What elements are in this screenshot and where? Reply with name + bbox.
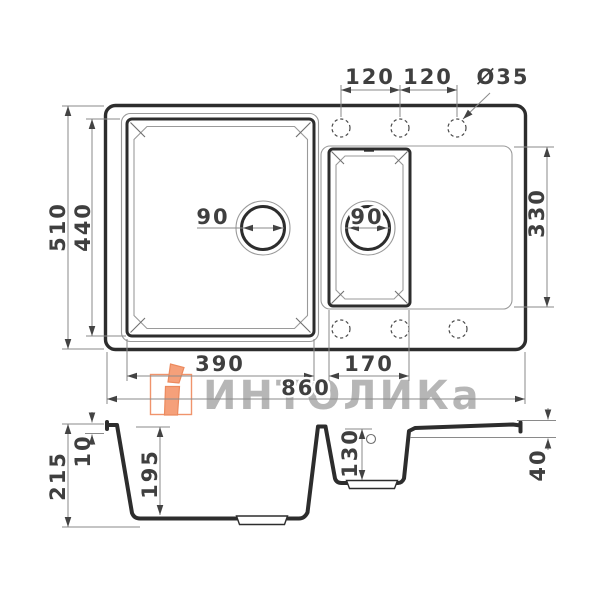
faucet-hole-icon — [332, 320, 350, 338]
main-bowl-chamfer-tl — [131, 123, 146, 138]
faucet-hole-icon — [391, 320, 409, 338]
small-bowl-chamfer-tr — [395, 152, 408, 165]
dim-total-width: 860 — [281, 376, 331, 400]
dim-main-bowl-height: 440 — [71, 202, 95, 252]
faucet-hole-icon — [448, 119, 466, 137]
faucet-hole-icon — [391, 119, 409, 137]
dim-faucet-spacing-left: 120 — [345, 65, 395, 89]
dim-faucet-hole-diameter: Ø35 — [476, 65, 529, 89]
faucet-hole-icon — [332, 119, 350, 137]
main-bowl-chamfer-bl — [131, 318, 146, 333]
dim-right-edge-height: 40 — [526, 448, 550, 481]
main-drain-recess — [237, 516, 288, 525]
dim-right-zone-height: 330 — [525, 188, 549, 238]
dim-total-depth: 215 — [46, 451, 70, 501]
dim-main-bowl-depth: 195 — [138, 449, 162, 499]
small-bowl-chamfer-bl — [332, 291, 345, 304]
dim-small-drain: 90 — [350, 205, 383, 229]
dim-rim-height: 10 — [71, 434, 95, 467]
section-drain-hole-icon — [367, 435, 376, 444]
side-view: 215 10 195 130 40 — [46, 408, 556, 527]
small-bowl-chamfer-tl — [332, 152, 345, 165]
dim-total-height: 510 — [46, 202, 70, 252]
top-view: 90 90 120 120 Ø35 510 440 330 390 — [46, 65, 554, 404]
faucet-hole-icon — [449, 320, 467, 338]
watermark-brand-text: ИНТОЛИКа — [203, 373, 482, 419]
dim-main-bowl-width: 390 — [195, 352, 245, 376]
brand-logo-bar-icon — [165, 387, 180, 416]
dim-faucet-spacing-right: 120 — [403, 65, 453, 89]
section-profile — [107, 425, 521, 519]
drawing-svg: ИНТОЛИКа — [0, 0, 600, 600]
dim-small-bowl-depth: 130 — [338, 428, 362, 478]
sink-dimension-drawing: ИНТОЛИКа — [0, 0, 600, 600]
small-drain-recess — [347, 481, 398, 489]
dim-main-drain: 90 — [196, 205, 229, 229]
small-bowl-chamfer-br — [395, 291, 408, 304]
dim-small-bowl-width: 170 — [344, 352, 394, 376]
